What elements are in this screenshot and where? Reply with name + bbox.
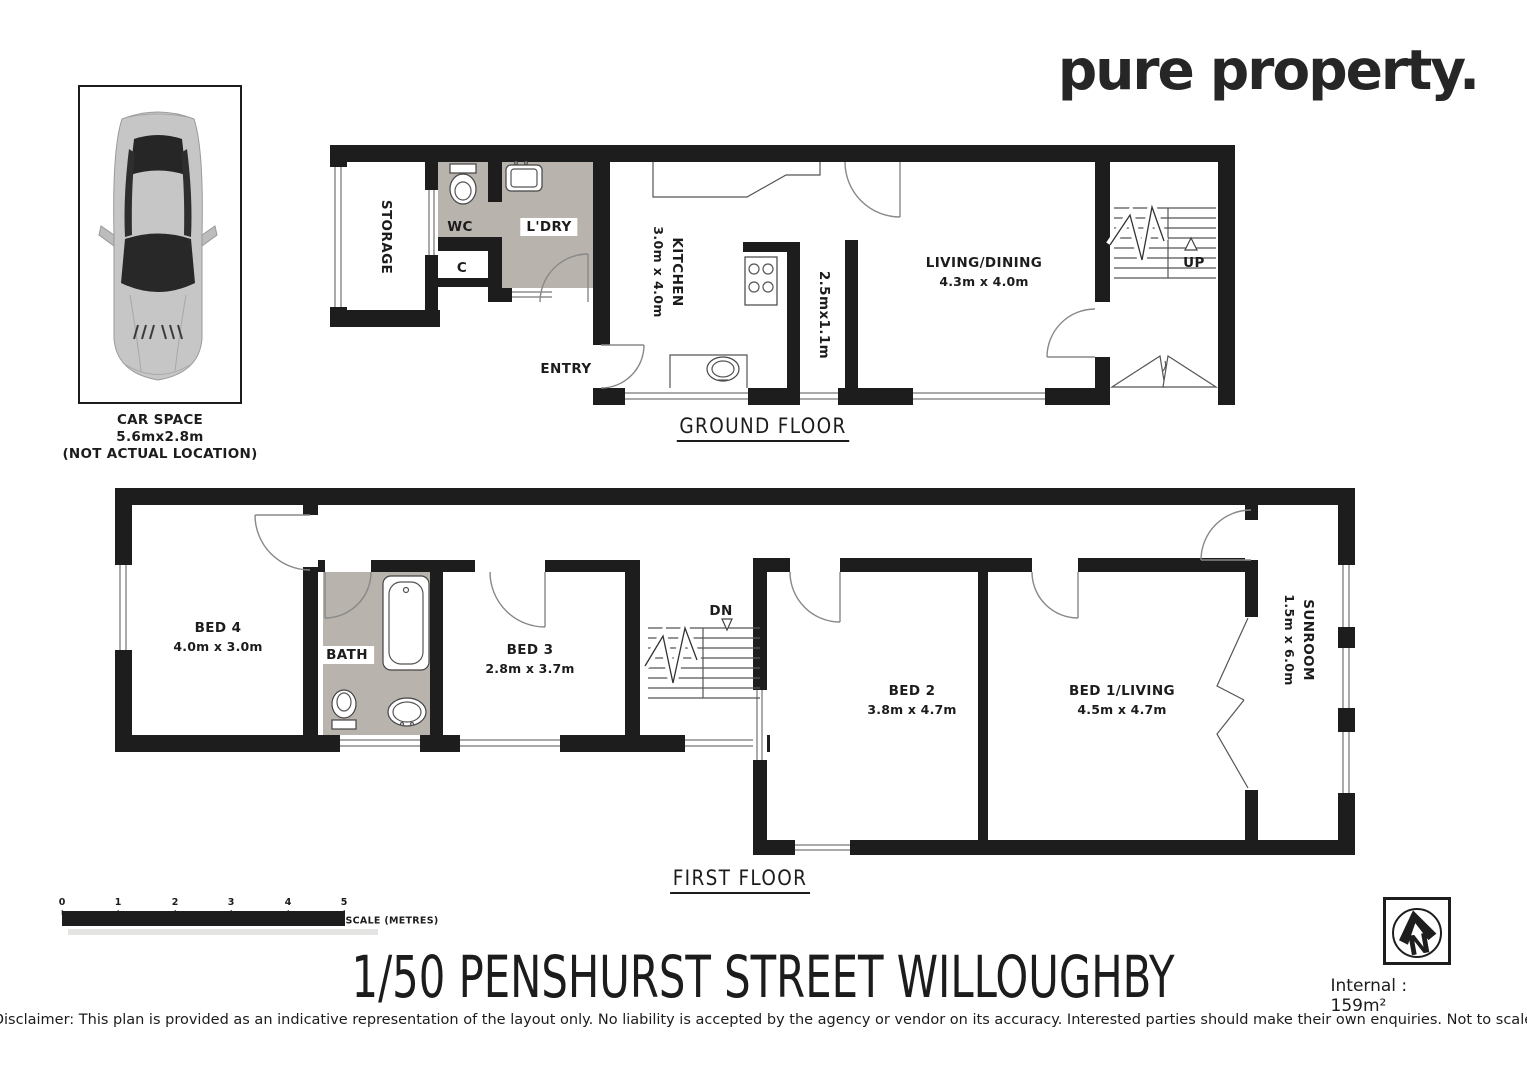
car-space-title: CAR SPACE [117,412,203,428]
first-floor-plan [115,488,1355,855]
brand-logo: pure property. [1058,38,1478,102]
scale-bar [62,911,345,926]
room-label-bed3: BED 3 2.8m x 3.7m [485,642,574,676]
scale-tick-2: 2 [172,897,179,908]
stove-icon [745,257,777,305]
room-label-laundry: L'DRY [520,218,577,236]
north-arrow-icon: N [1383,897,1451,965]
bifold-doors [1112,356,1216,387]
room-label-kitchen: KITCHEN 3.0m x 4.0m [651,226,685,318]
room-label-closet: C [457,260,467,276]
room-label-bath: BATH [320,646,374,664]
bath-toilet-icon [332,690,356,729]
address-title: 1/50 PENSHURST STREET WILLOUGHBY [352,943,1175,1011]
car-space-caption: CAR SPACE 5.6mx2.8m (NOT ACTUAL LOCATION… [62,412,257,463]
car-space-size: 5.6mx2.8m [116,429,203,445]
car-top-view-image [80,87,236,398]
entry-label: ENTRY [540,361,591,377]
floor-plan-page: pure property. CAR SPACE 5.6mx2.8m (NOT … [0,0,1527,1080]
room-label-living: LIVING/DINING 4.3m x 4.0m [926,255,1043,289]
scale-tick-5: 5 [341,897,348,908]
stairs-up-label: UP [1183,255,1205,271]
scale-tick-4: 4 [285,897,292,908]
room-label-storage: STORAGE [378,200,394,274]
room-label-wc: WC [447,219,473,235]
stairs-down [645,619,760,698]
scale-tick-1: 1 [115,897,122,908]
room-label-hall: 2.5mx1.1m [816,271,832,359]
wc-toilet-icon [450,164,476,204]
scale-tick-0: 0 [59,897,66,908]
room-label-bed1: BED 1/LIVING 4.5m x 4.7m [1069,683,1175,717]
car-space-note: (NOT ACTUAL LOCATION) [62,446,257,462]
scale-bar-label: SCALE (METRES) [346,916,439,927]
stairs-down-label: DN [709,603,732,619]
ground-floor-title: GROUND FLOOR [677,414,849,442]
laundry-tub-icon [506,162,542,192]
kitchen-sink-icon [707,357,739,381]
room-label-bed2: BED 2 3.8m x 4.7m [867,683,956,717]
first-floor-title: FIRST FLOOR [670,866,810,894]
room-label-bed4: BED 4 4.0m x 3.0m [173,620,262,654]
internal-area-label: Internal : 159m² [1331,976,1462,1016]
disclaimer-text: Disclaimer: This plan is provided as an … [0,1012,1527,1028]
room-label-sunroom: SUNROOM 1.5m x 6.0m [1282,594,1316,686]
car-space-box [78,85,242,404]
scale-tick-3: 3 [228,897,235,908]
sunroom-bifold-doors [1217,618,1248,788]
bathtub-icon [383,576,429,670]
bath-basin-icon [388,698,426,726]
scale-bar-shadow [68,929,378,935]
first-floor-walls [115,488,1355,855]
